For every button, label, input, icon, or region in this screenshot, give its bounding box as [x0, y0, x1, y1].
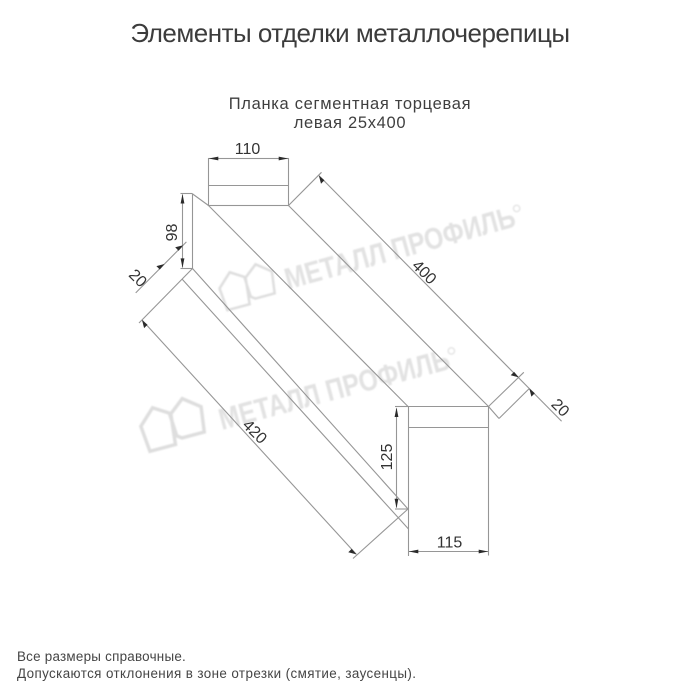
svg-text:115: 115	[437, 535, 463, 552]
svg-text:98: 98	[164, 224, 181, 242]
svg-text:20: 20	[547, 396, 572, 421]
svg-text:110: 110	[235, 141, 261, 158]
svg-text:МЕТАЛЛ ПРОФИЛЬ: МЕТАЛЛ ПРОФИЛЬ	[281, 200, 519, 296]
svg-text:20: 20	[125, 266, 150, 291]
svg-text:125: 125	[379, 444, 396, 471]
svg-text:400: 400	[408, 257, 439, 288]
